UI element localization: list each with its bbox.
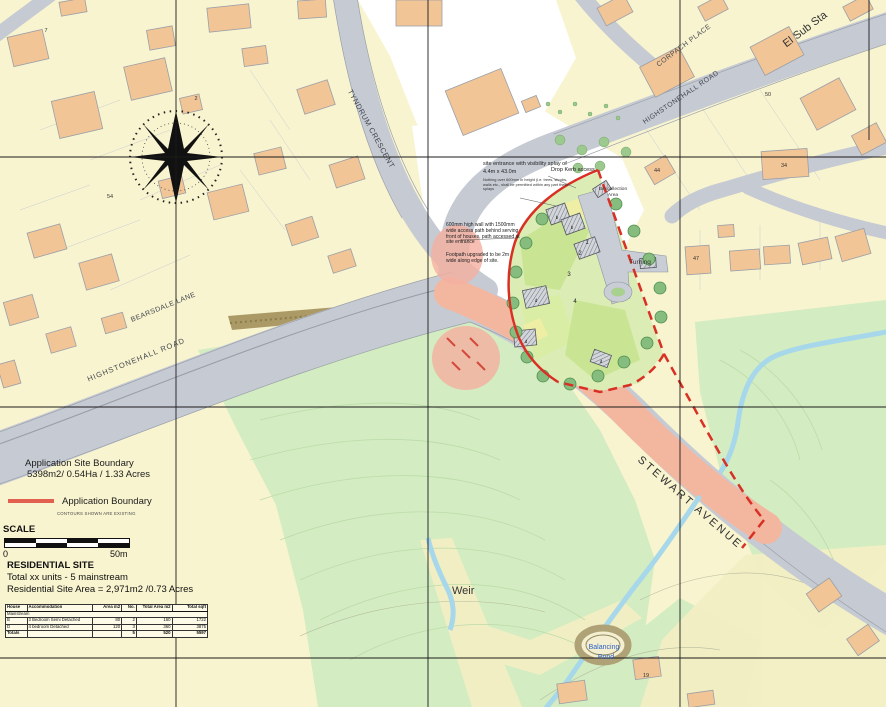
totals-sqft: 5597 bbox=[172, 631, 207, 638]
cell bbox=[93, 631, 122, 638]
unit-mix-table: House Accommodation Area m2 No. Total Ar… bbox=[5, 604, 208, 638]
turning-head-island bbox=[611, 288, 625, 297]
house-number: 44 bbox=[654, 168, 660, 174]
label-balancing-pond-1: Balancing bbox=[589, 644, 620, 651]
footpath-annotation: Footpath upgraded to be 2m wide along ed… bbox=[446, 253, 512, 265]
house-number: 2 bbox=[194, 96, 197, 102]
cell bbox=[27, 631, 93, 638]
legend-site-boundary-title: Application Site Boundary bbox=[25, 458, 134, 469]
entrance-annotation-smallprint: Nothing over 600mm in height (i.e. trees… bbox=[483, 178, 569, 192]
unit-mix-totals-row: Totals 5 520 5597 bbox=[6, 631, 208, 638]
label-balancing-pond-2: Pond bbox=[598, 654, 614, 661]
label-bin-collection-1: Bin collection bbox=[599, 186, 628, 192]
label-weir: Weir bbox=[452, 585, 475, 597]
legend-contours-note: CONTOURS SHOWN ARE EXISTING bbox=[57, 511, 136, 516]
house-number: 7 bbox=[44, 28, 47, 34]
totals-area: 520 bbox=[136, 631, 172, 638]
residential-units-line: Total xx units - 5 mainstream bbox=[7, 572, 128, 583]
scale-zero: 0 bbox=[3, 549, 8, 559]
totals-label: Totals bbox=[6, 631, 28, 638]
totals-no: 5 bbox=[122, 631, 137, 638]
scale-label: SCALE bbox=[3, 524, 35, 535]
residential-area-line: Residential Site Area = 2,971m2 /0.73 Ac… bbox=[7, 584, 193, 595]
drop-kerb-annotation: Drop Kerb access bbox=[551, 167, 595, 173]
house-number: 54 bbox=[107, 194, 113, 200]
house-number: 19 bbox=[643, 673, 649, 679]
scale-max: 50m bbox=[110, 549, 128, 559]
wall-annotation: 600mm high wall with 1500mm wide access … bbox=[446, 223, 520, 246]
legend-site-boundary-area: 5398m2/ 0.54Ha / 1.33 Acres bbox=[27, 469, 150, 480]
label-bin-collection-2: Area bbox=[608, 192, 618, 198]
house-number: 34 bbox=[781, 163, 787, 169]
site-plan-map: TYNDRUM CRESCENT CORPACH PLACE El Sub St… bbox=[0, 0, 886, 707]
application-boundary-swatch bbox=[8, 499, 54, 503]
annotation-blob-2 bbox=[432, 326, 500, 390]
house-number: 47 bbox=[693, 256, 699, 262]
scale-bar bbox=[4, 538, 130, 548]
entrance-annotation-line2: 4.4m x 43.0m bbox=[483, 169, 516, 175]
map-canvas: TYNDRUM CRESCENT CORPACH PLACE El Sub St… bbox=[0, 0, 886, 707]
house-number: 50 bbox=[765, 92, 771, 98]
residential-site-title: RESIDENTIAL SITE bbox=[7, 560, 94, 571]
label-turning: Turning bbox=[629, 259, 651, 266]
legend-application-boundary-label: Application Boundary bbox=[62, 496, 152, 507]
